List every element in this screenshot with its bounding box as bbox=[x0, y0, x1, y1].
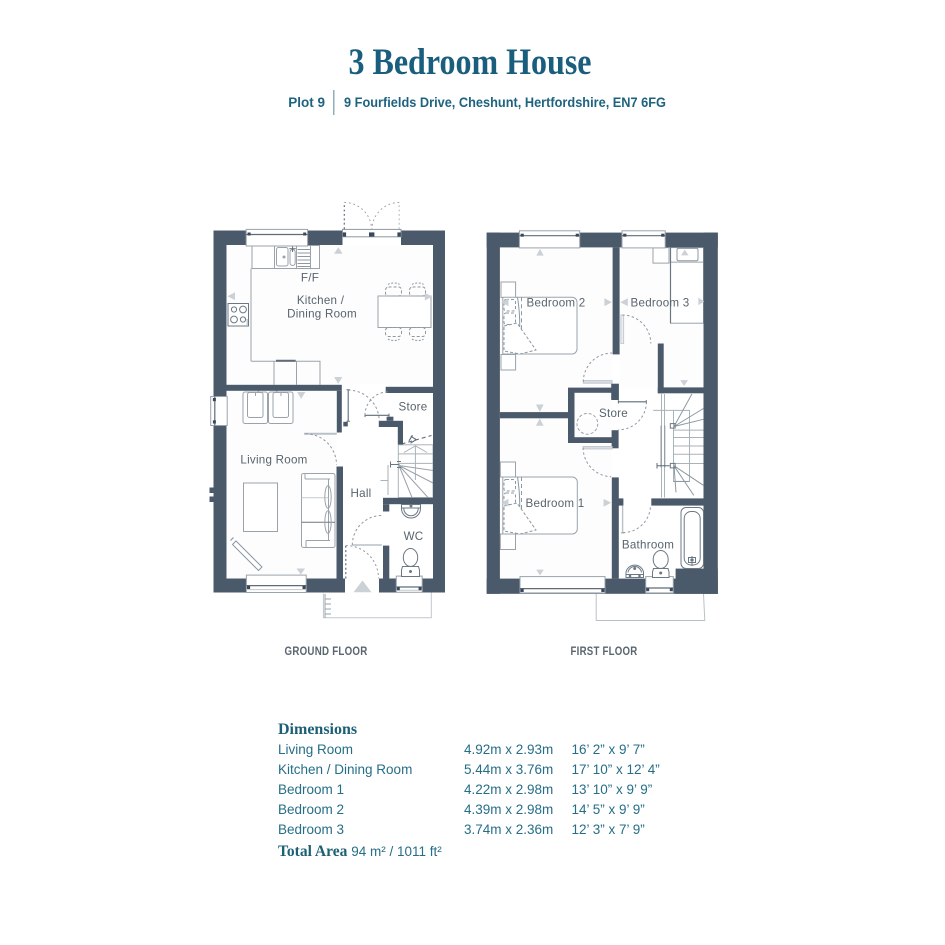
svg-text:9 Fourfields Drive, Cheshunt,: 9 Fourfields Drive, Cheshunt, Hertfordsh… bbox=[344, 95, 666, 110]
svg-text:3 Bedroom House: 3 Bedroom House bbox=[349, 42, 592, 83]
svg-text:F/F: F/F bbox=[301, 272, 319, 285]
svg-text:14’ 5” x 9’ 9”: 14’ 5” x 9’ 9” bbox=[572, 802, 645, 817]
svg-text:Kitchen / Dining Room: Kitchen / Dining Room bbox=[278, 762, 412, 777]
svg-text:4.22m x 2.98m: 4.22m x 2.98m bbox=[464, 782, 553, 797]
svg-text:3.74m x 2.36m: 3.74m x 2.36m bbox=[464, 822, 553, 837]
svg-text:Kitchen /: Kitchen / bbox=[297, 294, 345, 307]
svg-text:Store: Store bbox=[399, 401, 428, 414]
svg-text:GROUND FLOOR: GROUND FLOOR bbox=[285, 646, 368, 658]
svg-text:13’ 10” x 9’ 9”: 13’ 10” x 9’ 9” bbox=[572, 782, 653, 797]
svg-text:16’ 2” x 9’ 7”: 16’ 2” x 9’ 7” bbox=[572, 742, 645, 757]
svg-text:5.44m x 3.76m: 5.44m x 3.76m bbox=[464, 762, 553, 777]
svg-text:Bedroom 2: Bedroom 2 bbox=[278, 802, 344, 817]
svg-text:Bedroom 3: Bedroom 3 bbox=[631, 297, 690, 310]
svg-text:Total Area 94 m² / 1011 ft²: Total Area 94 m² / 1011 ft² bbox=[278, 843, 442, 860]
svg-text:Store: Store bbox=[599, 407, 628, 420]
svg-text:Dimensions: Dimensions bbox=[278, 721, 357, 738]
svg-text:Hall: Hall bbox=[351, 487, 372, 500]
svg-text:Plot 9: Plot 9 bbox=[288, 95, 325, 110]
svg-text:12’ 3” x 7’ 9”: 12’ 3” x 7’ 9” bbox=[572, 822, 645, 837]
svg-text:Bathroom: Bathroom bbox=[622, 539, 674, 552]
svg-text:Bedroom 1: Bedroom 1 bbox=[278, 782, 344, 797]
svg-text:Bedroom 3: Bedroom 3 bbox=[278, 822, 344, 837]
svg-text:Bedroom 1: Bedroom 1 bbox=[526, 497, 585, 510]
svg-text:Living Room: Living Room bbox=[240, 454, 307, 467]
svg-text:Bedroom 2: Bedroom 2 bbox=[527, 297, 586, 310]
svg-text:17’ 10” x 12’ 4”: 17’ 10” x 12’ 4” bbox=[572, 762, 660, 777]
svg-text:4.92m x 2.93m: 4.92m x 2.93m bbox=[464, 742, 553, 757]
svg-text:FIRST FLOOR: FIRST FLOOR bbox=[571, 646, 638, 658]
svg-text:Dining Room: Dining Room bbox=[287, 308, 357, 321]
svg-text:WC: WC bbox=[404, 530, 424, 543]
svg-text:4.39m x 2.98m: 4.39m x 2.98m bbox=[464, 802, 553, 817]
svg-text:Living Room: Living Room bbox=[278, 742, 353, 757]
